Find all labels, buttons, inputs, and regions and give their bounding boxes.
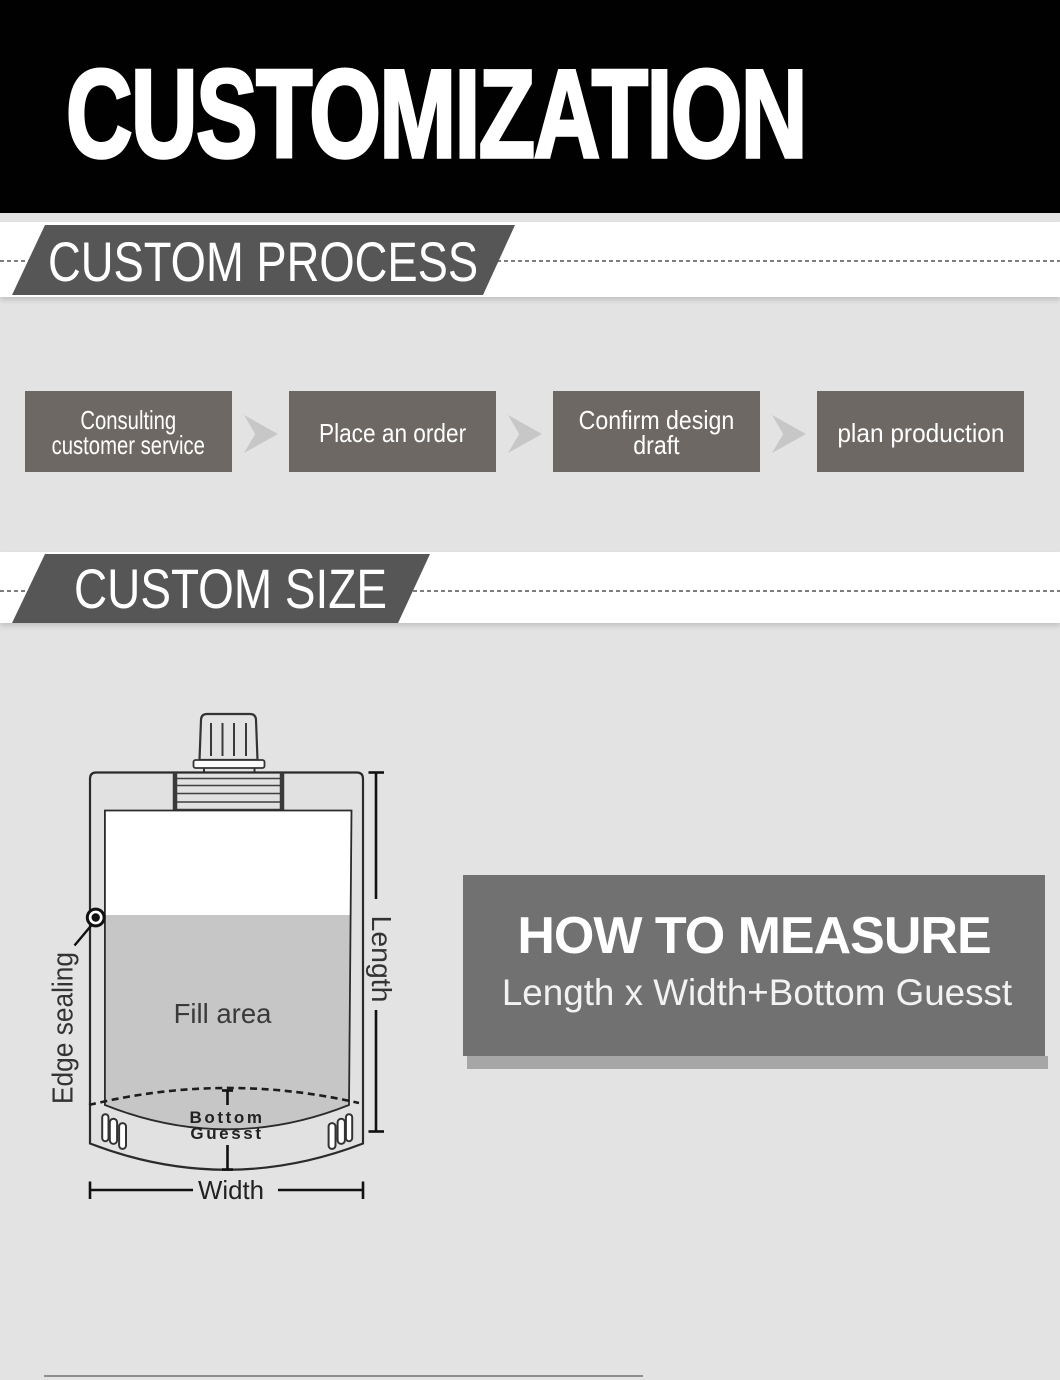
svg-text:Guesst: Guesst [190, 1124, 263, 1143]
svg-text:Fill area: Fill area [174, 998, 273, 1029]
svg-text:Edge sealing: Edge sealing [48, 952, 80, 1104]
svg-text:Length: Length [366, 916, 397, 1003]
svg-text:Width: Width [198, 1175, 264, 1205]
